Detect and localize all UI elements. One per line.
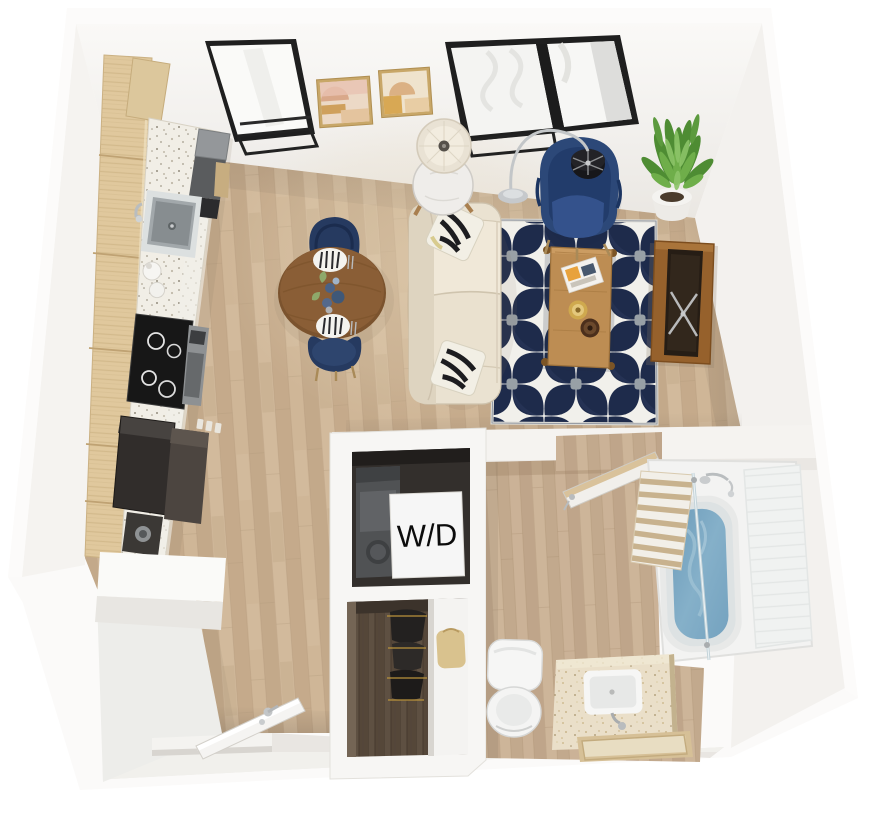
svg-text:W/D: W/D	[396, 517, 457, 554]
